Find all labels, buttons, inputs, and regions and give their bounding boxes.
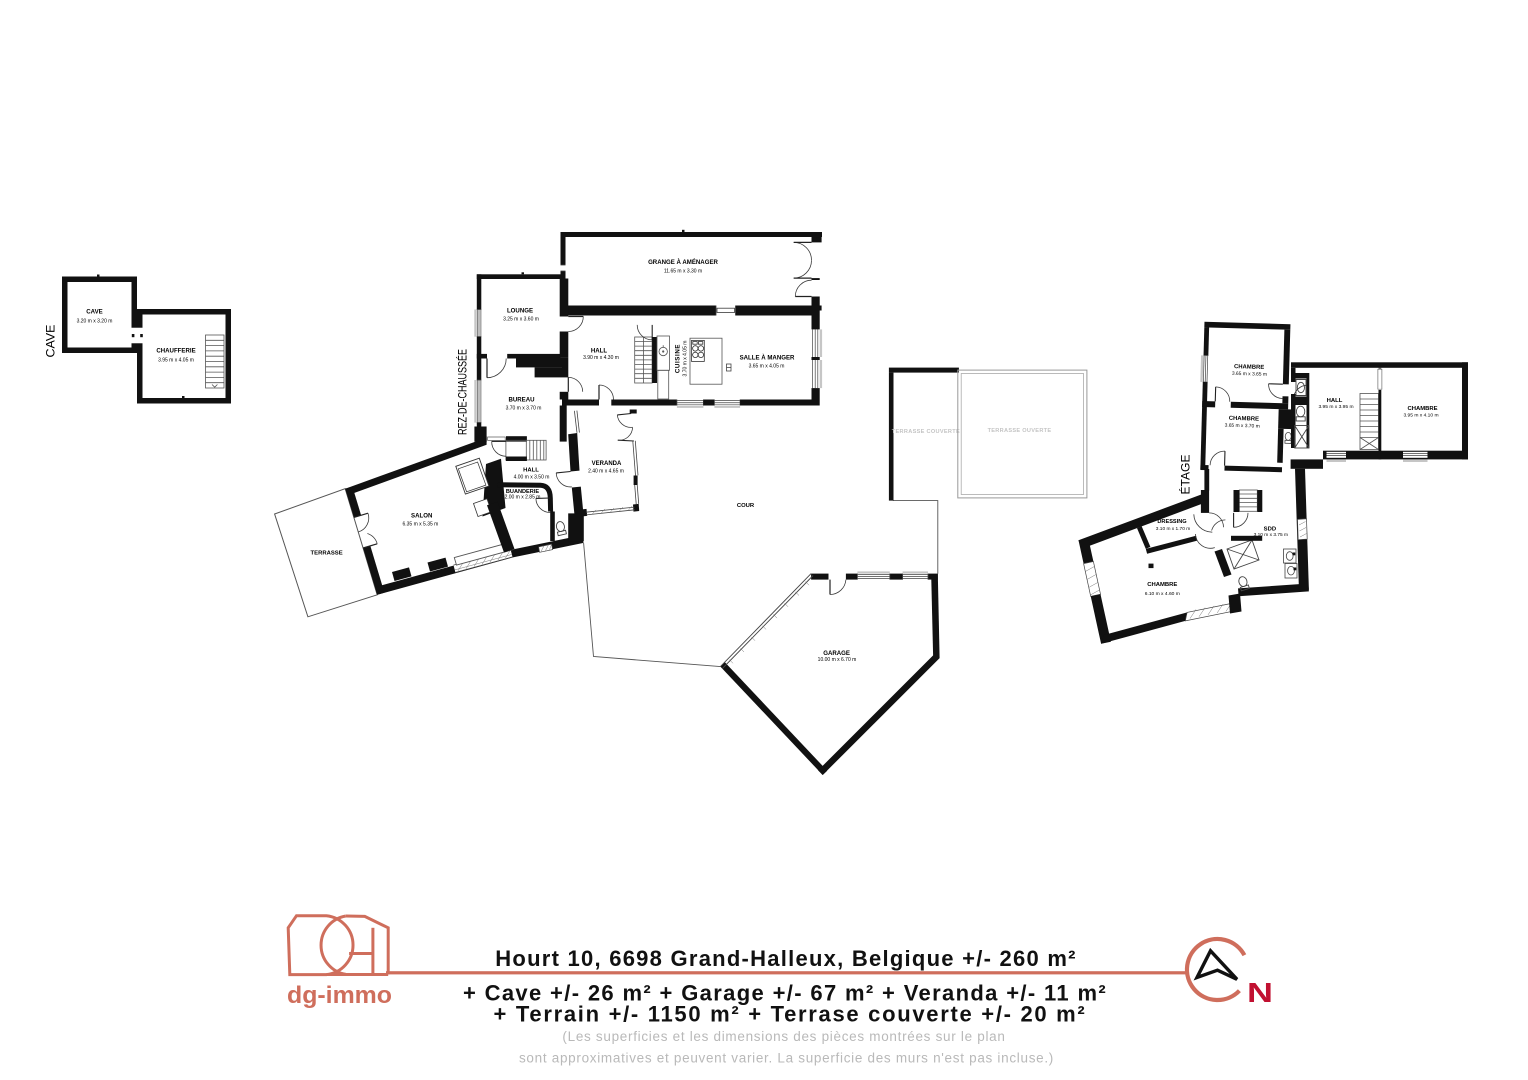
svg-text:(Les superficies et les dimens: (Les superficies et les dimensions des p… xyxy=(562,1029,1005,1044)
svg-text:CUISINE: CUISINE xyxy=(675,344,682,373)
svg-text:3.65 m x 3.65 m: 3.65 m x 3.65 m xyxy=(1232,371,1267,378)
svg-text:3.95 m x 4.10 m: 3.95 m x 4.10 m xyxy=(1403,413,1438,419)
svg-text:CHAMBRE: CHAMBRE xyxy=(1407,406,1437,412)
svg-text:3.65 m x 3.70 m: 3.65 m x 3.70 m xyxy=(1225,423,1260,430)
svg-text:3.90 m x 4.30 m: 3.90 m x 4.30 m xyxy=(583,355,619,361)
svg-text:COUR: COUR xyxy=(737,503,755,509)
svg-text:11.65 m x 3.30 m: 11.65 m x 3.30 m xyxy=(664,269,702,275)
svg-text:SALLE À MANGER: SALLE À MANGER xyxy=(740,355,795,362)
svg-text:6.35 m x 5.35 m: 6.35 m x 5.35 m xyxy=(402,522,438,528)
svg-text:CAVE: CAVE xyxy=(44,325,58,358)
svg-text:HALL: HALL xyxy=(1327,398,1343,404)
svg-text:DRESSING: DRESSING xyxy=(1157,519,1186,525)
svg-text:2.40 m x 4.65 m: 2.40 m x 4.65 m xyxy=(588,468,624,474)
svg-text:3.95 m x 3.95 m: 3.95 m x 3.95 m xyxy=(1318,404,1353,410)
svg-text:SALON: SALON xyxy=(411,513,432,520)
svg-text:3.70 m x 3.70 m: 3.70 m x 3.70 m xyxy=(506,406,542,412)
svg-text:10.00 m x 6.70 m: 10.00 m x 6.70 m xyxy=(818,657,857,663)
svg-text:CHAMBRE: CHAMBRE xyxy=(1234,364,1264,371)
svg-text:3.25 m x 3.60 m: 3.25 m x 3.60 m xyxy=(503,317,539,323)
svg-text:3.95 m x 4.05 m: 3.95 m x 4.05 m xyxy=(158,358,194,364)
svg-text:VERANDA: VERANDA xyxy=(592,461,622,467)
svg-text:SDD: SDD xyxy=(1264,526,1276,532)
svg-text:HALL: HALL xyxy=(523,468,539,474)
svg-text:TERRASSE OUVERTE: TERRASSE OUVERTE xyxy=(988,428,1052,434)
svg-text:N: N xyxy=(1247,977,1273,1008)
svg-text:REZ-DE-CHAUSSÉE: REZ-DE-CHAUSSÉE xyxy=(455,349,470,435)
svg-text:3.70 m x 4.05 m: 3.70 m x 4.05 m xyxy=(683,341,689,377)
svg-text:CAVE: CAVE xyxy=(86,309,102,316)
svg-text:GRANGE À AMÉNAGER: GRANGE À AMÉNAGER xyxy=(648,258,718,266)
svg-text:BUREAU: BUREAU xyxy=(508,397,535,404)
svg-text:2.00 m x 2.85 m: 2.00 m x 2.85 m xyxy=(505,495,541,501)
svg-text:3.10 m x 1.70 m: 3.10 m x 1.70 m xyxy=(1156,526,1190,532)
svg-text:3.65 m x 4.05 m: 3.65 m x 4.05 m xyxy=(749,364,785,370)
svg-text:HALL: HALL xyxy=(591,348,608,355)
svg-text:TERRASSE: TERRASSE xyxy=(311,550,343,556)
svg-text:sont approximatives et peuvent: sont approximatives et peuvent varier. L… xyxy=(519,1051,1054,1066)
svg-text:dg-immo: dg-immo xyxy=(287,982,392,1009)
svg-text:+ Terrain +/- 1150 m² + Terra: + Terrain +/- 1150 m² + Terrase couverte… xyxy=(494,1002,1087,1027)
svg-text:Hourt 10, 6698 Grand-Halleux,: Hourt 10, 6698 Grand-Halleux, Belgique +… xyxy=(495,946,1076,971)
svg-text:TERRASSE COUVERTE: TERRASSE COUVERTE xyxy=(892,429,960,435)
svg-text:CHAUFFERIE: CHAUFFERIE xyxy=(156,348,195,355)
svg-text:CHAMBRE: CHAMBRE xyxy=(1229,416,1259,423)
svg-text:6.10 m x 4.60 m: 6.10 m x 4.60 m xyxy=(1145,591,1180,597)
svg-text:3.20 m x 3.20 m: 3.20 m x 3.20 m xyxy=(77,319,113,325)
svg-text:LOUNGE: LOUNGE xyxy=(507,308,533,315)
svg-text:ÉTAGE: ÉTAGE xyxy=(1178,455,1193,495)
svg-text:GARAGE: GARAGE xyxy=(823,650,850,657)
svg-text:CHAMBRE: CHAMBRE xyxy=(1147,582,1177,588)
svg-text:4.00 m x 3.50 m: 4.00 m x 3.50 m xyxy=(514,474,550,480)
